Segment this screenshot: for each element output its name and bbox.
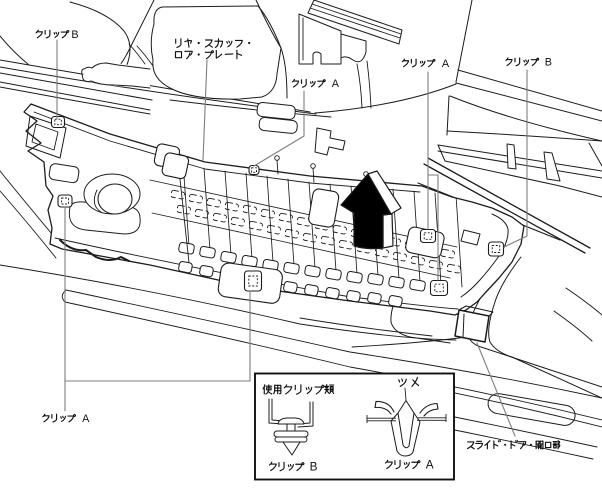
svg-text:A: A [332,78,340,90]
svg-text:A: A [82,413,90,425]
svg-text:B: B [310,460,318,474]
svg-text:A: A [442,58,450,70]
svg-text:A: A [426,458,434,472]
svg-text:B: B [545,57,552,69]
svg-text:B: B [71,29,78,41]
